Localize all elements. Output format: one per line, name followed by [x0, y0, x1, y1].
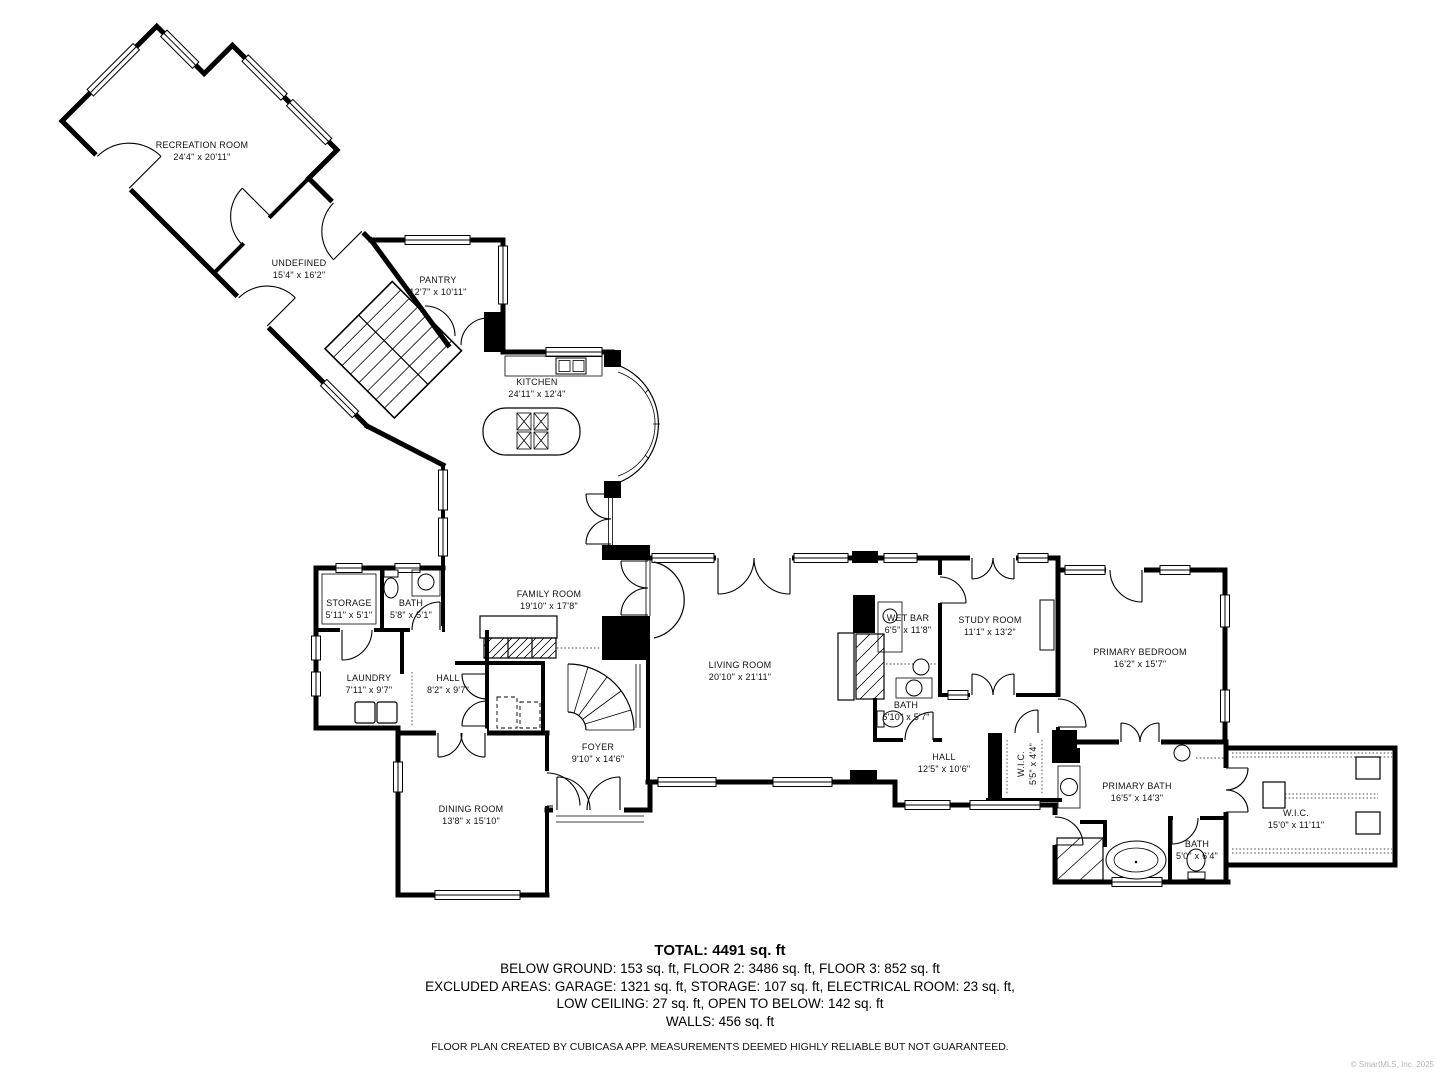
room-name: WET BAR	[887, 613, 930, 623]
french-door-wall	[609, 494, 613, 546]
room-label-family-room: FAMILY ROOM 19'10" x 17'8"	[517, 589, 581, 611]
window	[312, 636, 321, 660]
room-name: BATH	[1185, 839, 1209, 849]
deck-curve	[654, 562, 684, 638]
room-dims: 12'5" x 10'6"	[918, 764, 971, 774]
window	[435, 891, 520, 900]
room-name: FAMILY ROOM	[517, 589, 581, 599]
wall-block	[850, 770, 877, 782]
door-arc	[621, 561, 648, 588]
wic-closet-rods	[1232, 753, 1392, 853]
door-arc	[718, 558, 754, 594]
door-arc	[754, 558, 790, 594]
door-gap	[410, 626, 442, 634]
window	[395, 564, 420, 573]
room-label-study-room: STUDY ROOM 11'1" x 13'2"	[958, 615, 1021, 637]
room-label-foyer: FOYER 9'10" x 14'6"	[572, 742, 625, 764]
bay-window	[618, 366, 660, 482]
room-name: BATH	[399, 598, 423, 608]
window	[905, 801, 950, 810]
door-arc	[342, 630, 372, 660]
room-dims: 16'5" x 14'3"	[1111, 793, 1164, 803]
room-label-wic-small: W.I.C. 5'5" x 4'4"	[1016, 743, 1038, 785]
sink-icon	[1174, 745, 1224, 761]
room-dims: 5'5" x 4'4"	[1028, 743, 1038, 785]
room-name: STORAGE	[326, 598, 372, 608]
shower-icon	[1057, 838, 1103, 880]
excluded-areas-text-2: LOW CEILING: 27 sq. ft, OPEN TO BELOW: 1…	[0, 995, 1440, 1013]
kitchen-fixtures	[483, 356, 602, 455]
walls-main	[316, 240, 1395, 895]
room-name: PRIMARY BEDROOM	[1093, 647, 1186, 657]
window	[320, 379, 358, 417]
floor-areas-text: BELOW GROUND: 153 sq. ft, FLOOR 2: 3486 …	[0, 960, 1440, 978]
laundry-exterior-wall	[316, 568, 443, 728]
staircase-foyer	[568, 664, 640, 730]
room-name: KITCHEN	[516, 377, 557, 387]
window	[546, 348, 602, 357]
disclaimer-text: FLOOR PLAN CREATED BY CUBICASA APP. MEAS…	[0, 1041, 1440, 1053]
room-label-recreation-room: RECREATION ROOM 24'4" x 20'11"	[156, 140, 249, 162]
room-dims: 13'8" x 15'10"	[442, 816, 500, 826]
window	[405, 236, 470, 245]
builtin-shelf	[1040, 600, 1054, 650]
room-name: HALL	[932, 752, 956, 762]
window	[652, 554, 714, 563]
copyright-text: © SmartMLS, Inc. 2025	[1351, 1060, 1434, 1069]
wall-block	[852, 551, 878, 563]
door-arc	[1058, 699, 1086, 727]
sink-icon	[913, 659, 929, 675]
window	[1221, 690, 1230, 722]
toilet-icon	[384, 570, 398, 598]
room-dims: 20'10" x 21'11"	[709, 672, 771, 682]
window	[499, 246, 508, 304]
wall-block	[853, 595, 875, 633]
window	[439, 518, 448, 556]
window	[794, 554, 848, 563]
window	[394, 762, 403, 792]
room-label-dining-room: DINING ROOM 13'8" x 15'10"	[439, 804, 504, 826]
door-gap	[340, 626, 374, 634]
room-labels: RECREATION ROOM 24'4" x 20'11" UNDEFINED…	[156, 140, 1325, 861]
washer-dryer-icon	[355, 702, 397, 723]
window	[439, 470, 448, 510]
door-gap	[234, 293, 271, 330]
room-name: UNDEFINED	[272, 258, 327, 268]
door-arc	[1110, 570, 1142, 602]
window	[287, 99, 332, 144]
window	[773, 778, 832, 787]
window	[1018, 554, 1048, 563]
door-arc	[586, 519, 611, 544]
total-area-text: TOTAL: 4491 sq. ft	[0, 942, 1440, 960]
sink-icon	[412, 570, 440, 596]
door-gap	[1106, 566, 1144, 575]
room-name: W.I.C.	[1016, 751, 1026, 777]
fireplace-mantel	[838, 633, 854, 700]
window	[970, 801, 1040, 810]
window	[1160, 566, 1190, 575]
room-dims: 15'0" x 11'11"	[1268, 820, 1325, 830]
room-dims: 5'0" x 6'4"	[1176, 851, 1218, 861]
window	[1065, 566, 1105, 575]
room-label-wic-large: W.I.C. 15'0" x 11'11"	[1268, 808, 1325, 830]
kitchen-entry-door-arc	[461, 318, 488, 345]
room-name: LAUNDRY	[347, 673, 392, 683]
room-dims: 6'5" x 11'8"	[885, 625, 932, 635]
room-name: FOYER	[582, 742, 615, 752]
vanity-sink-icon	[896, 678, 932, 698]
room-dims: 24'11" x 12'4"	[508, 389, 565, 399]
wall-block	[602, 545, 650, 560]
room-dims: 9'10" x 14'6"	[572, 754, 625, 764]
room-label-kitchen: KITCHEN 24'11" x 12'4"	[508, 377, 565, 399]
door-gap	[93, 152, 134, 193]
door-arc	[97, 125, 161, 189]
door-gap	[1173, 814, 1200, 822]
room-name: HALL	[436, 673, 460, 683]
stove-icon	[517, 413, 548, 449]
door-arc	[462, 701, 487, 726]
room-dims: 7'11" x 9'7"	[346, 685, 393, 695]
door-gap	[329, 198, 366, 235]
room-name: W.I.C.	[1283, 808, 1309, 818]
room-name: DINING ROOM	[439, 804, 504, 814]
door-arc	[621, 588, 648, 615]
doors-main	[340, 306, 1248, 845]
room-name: PRIMARY BATH	[1102, 781, 1172, 791]
floor-plan-canvas: RECREATION ROOM 24'4" x 20'11" UNDEFINED…	[0, 0, 1440, 1080]
fireplace-mantel	[480, 616, 557, 638]
room-label-hall-1: HALL 8'2" x 9'7"	[427, 673, 469, 695]
room-label-laundry: LAUNDRY 7'11" x 9'7"	[346, 673, 393, 695]
window	[1221, 595, 1230, 627]
room-dims: 5'11" x 5'1"	[326, 610, 373, 620]
room-label-storage: STORAGE 5'11" x 5'1"	[326, 598, 373, 620]
rec-undefined-divider-wall	[214, 150, 337, 273]
room-label-primary-bedroom: PRIMARY BEDROOM 16'2" x 15'7"	[1093, 647, 1186, 669]
bath-interior-wall	[1082, 822, 1105, 845]
door-arc	[1015, 710, 1038, 733]
door-gap	[542, 771, 552, 806]
room-name: RECREATION ROOM	[156, 140, 249, 150]
room-name: STUDY ROOM	[958, 615, 1021, 625]
window	[242, 55, 287, 100]
room-dims: 15'4" x 16'2"	[273, 270, 326, 280]
room-label-pantry: PANTRY 12'7" x 10'11"	[409, 275, 466, 297]
window	[948, 691, 968, 700]
wall-block	[1057, 748, 1080, 763]
wall-block	[988, 733, 1002, 800]
room-name: BATH	[894, 700, 918, 710]
room-label-wet-bar: WET BAR 6'5" x 11'8"	[885, 613, 932, 635]
window	[336, 564, 362, 573]
area-summary: TOTAL: 4491 sq. ft BELOW GROUND: 153 sq.…	[0, 942, 1440, 1053]
windows-main	[312, 236, 1230, 900]
room-dims: 8'2" x 9'7"	[427, 685, 469, 695]
window	[658, 778, 716, 787]
chimney-block	[602, 616, 650, 660]
room-label-bath-1: BATH 5'8" x 5'1"	[390, 598, 432, 620]
door-gap	[903, 736, 933, 744]
room-dims: 11'1" x 13'2"	[964, 627, 1016, 637]
door-arc	[214, 188, 271, 245]
closet-box	[497, 697, 517, 728]
kitchen-diagonal-wall	[367, 426, 443, 465]
room-dims: 19'10" x 17'8"	[520, 601, 578, 611]
room-label-primary-bath: PRIMARY BATH 16'5" x 14'3"	[1102, 781, 1172, 803]
room-label-living-room: LIVING ROOM 20'10" x 21'11"	[709, 660, 772, 682]
window	[312, 672, 321, 696]
room-dims: 5'8" x 5'1"	[390, 610, 432, 620]
door-arc	[557, 777, 590, 810]
bathtub-icon	[1106, 841, 1166, 879]
window	[884, 554, 917, 563]
room-dims: 12'7" x 10'11"	[409, 287, 466, 297]
door-gap	[1054, 697, 1062, 727]
door-gap	[553, 806, 624, 815]
door-arc	[305, 203, 362, 260]
door-gap	[936, 575, 944, 603]
room-dims: 6'10" x 5'7"	[882, 712, 929, 722]
wic-wing-exterior-wall	[1226, 748, 1395, 865]
wing-rotated	[56, 0, 503, 439]
floor-plan-page: RECREATION ROOM 24'4" x 20'11" UNDEFINED…	[0, 0, 1440, 1080]
wall-block	[604, 350, 621, 367]
window	[87, 44, 139, 96]
room-label-hall-2: HALL 12'5" x 10'6"	[918, 752, 971, 774]
room-name: LIVING ROOM	[709, 660, 772, 670]
door-gap	[1050, 815, 1060, 845]
closet-box	[520, 702, 540, 728]
room-dims: 24'4" x 20'11"	[173, 152, 230, 162]
entry-steps	[556, 816, 644, 822]
room-label-undefined: UNDEFINED 15'4" x 16'2"	[272, 258, 327, 280]
walls-area-text: WALLS: 456 sq. ft	[0, 1013, 1440, 1031]
window	[161, 30, 199, 68]
kitchen-counter	[505, 356, 602, 376]
excluded-areas-text: EXCLUDED AREAS: GARAGE: 1321 sq. ft, STO…	[0, 978, 1440, 996]
room-name: PANTRY	[419, 275, 456, 285]
door-arc	[587, 777, 620, 810]
fireplaces	[480, 616, 884, 700]
room-dims: 16'2" x 15'7"	[1114, 659, 1167, 669]
kitchen-island	[483, 408, 580, 455]
